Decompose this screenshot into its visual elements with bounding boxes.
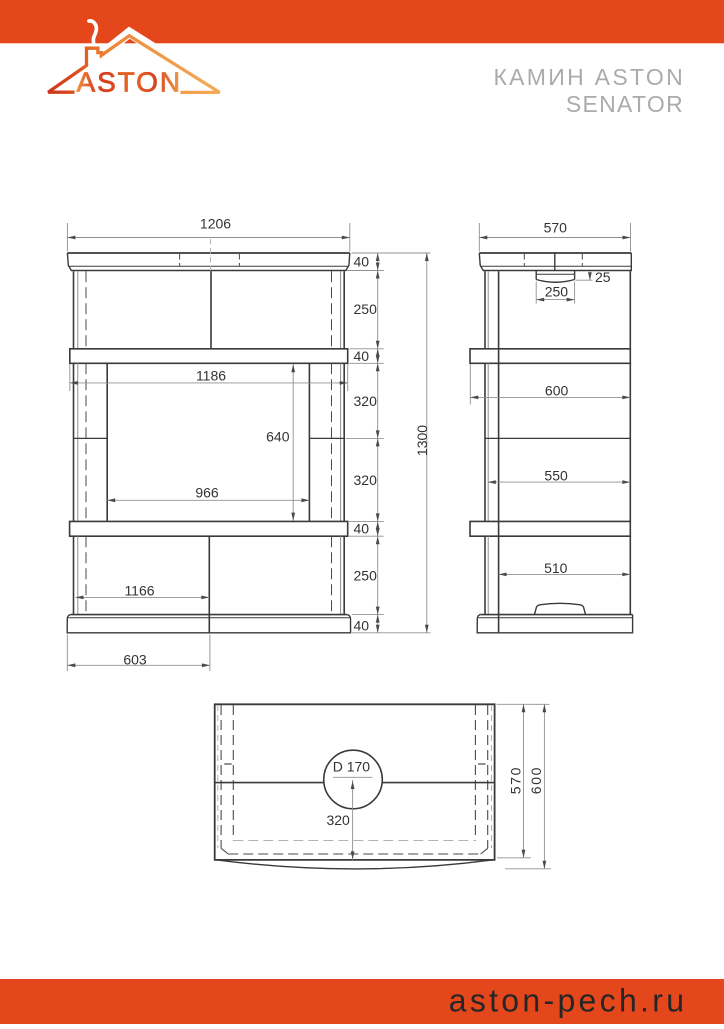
svg-text:40: 40	[354, 253, 370, 269]
svg-text:1186: 1186	[196, 368, 226, 384]
svg-text:320: 320	[326, 812, 350, 828]
svg-text:510: 510	[544, 560, 568, 576]
svg-text:40: 40	[354, 348, 370, 364]
svg-text:250: 250	[354, 568, 378, 584]
svg-text:600: 600	[545, 382, 569, 398]
svg-text:D 170: D 170	[333, 758, 371, 774]
svg-text:250: 250	[545, 283, 569, 299]
svg-text:550: 550	[544, 467, 568, 483]
svg-text:1166: 1166	[124, 582, 154, 598]
svg-text:966: 966	[195, 484, 219, 500]
svg-text:250: 250	[354, 301, 378, 317]
svg-text:570: 570	[508, 766, 524, 794]
svg-text:570: 570	[544, 220, 568, 236]
svg-text:600: 600	[528, 766, 544, 794]
svg-text:40: 40	[354, 521, 370, 537]
svg-text:ASTON: ASTON	[77, 67, 182, 98]
svg-text:40: 40	[354, 617, 370, 633]
svg-text:320: 320	[354, 472, 378, 488]
svg-text:aston-pech.ru: aston-pech.ru	[449, 983, 688, 1019]
svg-text:1300: 1300	[414, 425, 430, 456]
svg-text:640: 640	[266, 428, 290, 444]
svg-text:603: 603	[123, 651, 147, 667]
svg-text:SENATOR: SENATOR	[566, 91, 684, 117]
svg-text:25: 25	[595, 269, 611, 285]
svg-text:КАМИН ASTON: КАМИН ASTON	[493, 64, 685, 90]
svg-text:1206: 1206	[200, 215, 231, 231]
svg-text:320: 320	[354, 393, 378, 409]
